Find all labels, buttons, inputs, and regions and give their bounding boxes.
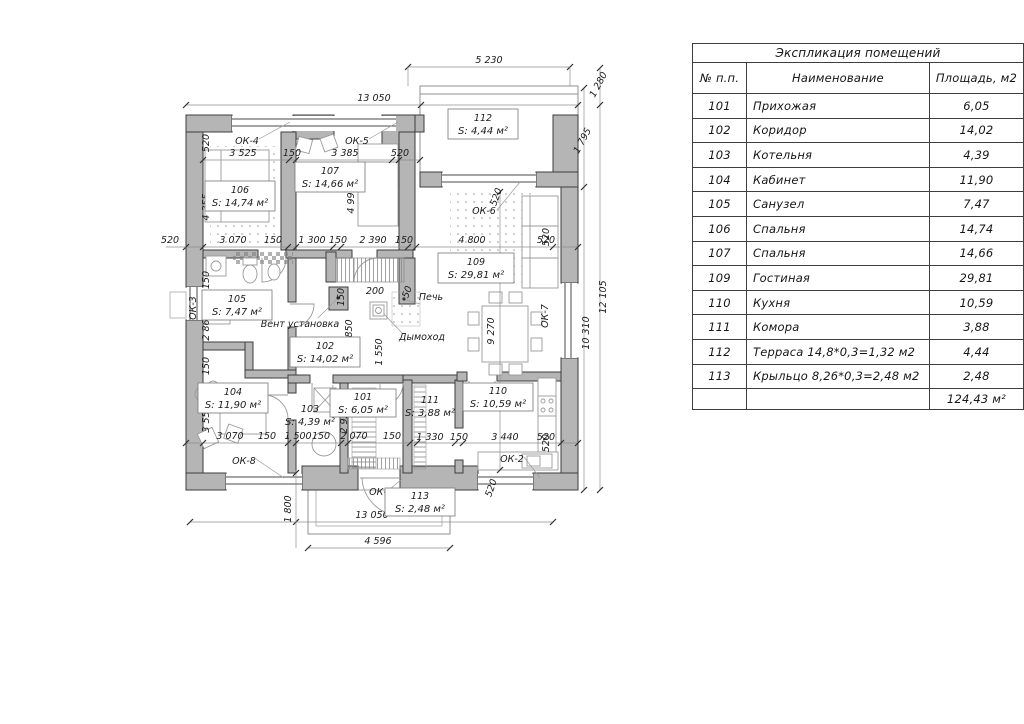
room-area-cell: 2,48 bbox=[929, 364, 1023, 389]
room-number-cell: 103 bbox=[693, 143, 747, 168]
room-number-cell: 112 bbox=[693, 339, 747, 364]
dim-label: 10 310 bbox=[581, 316, 592, 349]
room-number-cell: 104 bbox=[693, 167, 747, 192]
room-number: 102 bbox=[316, 341, 334, 352]
table-row: 102 Коридор 14,02 bbox=[693, 118, 1024, 143]
vent-unit-label: Вент установка bbox=[261, 319, 340, 330]
table-row: 110 Кухня 10,59 bbox=[693, 290, 1024, 315]
room-area-cell: 14,66 bbox=[929, 241, 1023, 266]
window-label-ok3: ОК-3 bbox=[188, 296, 199, 320]
window-label-ok2: ОК-2 bbox=[500, 454, 524, 465]
table-row: 113 Крыльцо 8,26*0,3=2,48 м2 2,48 bbox=[693, 364, 1024, 389]
dim-label: 150 bbox=[383, 431, 401, 442]
table-row: 105 Санузел 7,47 bbox=[693, 192, 1024, 217]
table-row: 104 Кабинет 11,90 bbox=[693, 167, 1024, 192]
dim-label: 150 bbox=[201, 357, 212, 375]
dim-label: 13 050 bbox=[355, 510, 388, 521]
room-number-cell: 107 bbox=[693, 241, 747, 266]
room-area-cell: 14,74 bbox=[929, 216, 1023, 241]
dim-label: 2 070 bbox=[340, 431, 367, 442]
dim-label: 3 385 bbox=[331, 148, 358, 159]
room-area-cell: 4,39 bbox=[929, 143, 1023, 168]
dim-label: 520 bbox=[161, 235, 179, 246]
room-area: S: 7,47 м² bbox=[212, 307, 262, 318]
window-label-ok5: ОК-5 bbox=[345, 136, 369, 147]
dim-label: 3 070 bbox=[219, 235, 246, 246]
room-number-cell: 105 bbox=[693, 192, 747, 217]
room-number-cell: 106 bbox=[693, 216, 747, 241]
col-header-name: Наименование bbox=[747, 63, 930, 94]
room-area-cell: 3,88 bbox=[929, 315, 1023, 340]
room-name-cell: Гостиная bbox=[747, 266, 930, 291]
table-row: 111 Комора 3,88 bbox=[693, 315, 1024, 340]
room-area: S: 10,59 м² bbox=[470, 399, 526, 410]
table-row: 107 Спальня 14,66 bbox=[693, 241, 1024, 266]
table-row: 112 Терраса 14,8*0,3=1,32 м2 4,44 bbox=[693, 339, 1024, 364]
window-label-ok7: ОК-7 bbox=[540, 304, 551, 328]
room-name-cell: Санузел bbox=[747, 192, 930, 217]
room-number: 106 bbox=[231, 185, 249, 196]
dim-label: 150 bbox=[264, 235, 282, 246]
room-number: 109 bbox=[467, 257, 485, 268]
dim-label: 1 330 bbox=[416, 432, 443, 443]
dim-label: 150 bbox=[336, 288, 347, 306]
room-area-cell: 10,59 bbox=[929, 290, 1023, 315]
table-header-row: № п.п. Наименование Площадь, м2 bbox=[693, 63, 1024, 94]
room-number: 113 bbox=[411, 491, 429, 502]
dim-label: 1 550 bbox=[374, 338, 385, 365]
room-name-cell: Крыльцо 8,26*0,3=2,48 м2 bbox=[747, 364, 930, 389]
room-name-cell: Котельня bbox=[747, 143, 930, 168]
room-area: S: 2,48 м² bbox=[395, 504, 445, 515]
table-row: 106 Спальня 14,74 bbox=[693, 216, 1024, 241]
room-area: S: 6,05 м² bbox=[338, 405, 388, 416]
dim-label: 4 800 bbox=[458, 235, 485, 246]
dim-label: 13 050 bbox=[357, 93, 390, 104]
room-name-cell: Комора bbox=[747, 315, 930, 340]
room-area: S: 4,44 м² bbox=[458, 126, 508, 137]
table-total-row: 124,43 м² bbox=[693, 389, 1024, 410]
chimney-label: Дымоход bbox=[398, 332, 445, 343]
dim-label: 150 bbox=[312, 431, 330, 442]
dim-label: 3 440 bbox=[491, 432, 518, 443]
dim-label: 1 500 bbox=[284, 431, 311, 442]
room-number: 112 bbox=[474, 113, 492, 124]
total-empty-cell bbox=[747, 389, 930, 410]
col-header-area: Площадь, м2 bbox=[929, 63, 1023, 94]
dim-label: 12 105 bbox=[598, 280, 609, 313]
room-number-cell: 101 bbox=[693, 94, 747, 119]
dim-label: 150 bbox=[201, 271, 212, 289]
room-number: 111 bbox=[421, 395, 439, 406]
table-row: 101 Прихожая 6,05 bbox=[693, 94, 1024, 119]
dim-label: 150 bbox=[258, 431, 276, 442]
room-number: 103 bbox=[301, 404, 319, 415]
room-name-cell: Кухня bbox=[747, 290, 930, 315]
room-area-cell: 29,81 bbox=[929, 266, 1023, 291]
room-number-cell: 109 bbox=[693, 266, 747, 291]
dim-label: 520 bbox=[391, 148, 409, 159]
dim-label: 520 bbox=[541, 228, 552, 246]
stove-label: Печь bbox=[419, 292, 443, 303]
room-area-cell: 14,02 bbox=[929, 118, 1023, 143]
room-area: S: 14,74 м² bbox=[212, 198, 268, 209]
room-number: 101 bbox=[354, 392, 372, 403]
room-schedule-table: Экспликация помещений № п.п. Наименовани… bbox=[692, 43, 1024, 410]
col-header-num: № п.п. bbox=[693, 63, 747, 94]
room-name-cell: Коридор bbox=[747, 118, 930, 143]
window-label-ok8: ОК-8 bbox=[232, 456, 256, 467]
table-row: 109 Гостиная 29,81 bbox=[693, 266, 1024, 291]
dim-label: 4 596 bbox=[364, 536, 391, 547]
room-number: 105 bbox=[228, 294, 246, 305]
total-empty-cell bbox=[693, 389, 747, 410]
table-row: 103 Котельня 4,39 bbox=[693, 143, 1024, 168]
dim-label: 150 bbox=[329, 235, 347, 246]
room-area-cell: 6,05 bbox=[929, 94, 1023, 119]
room-area: S: 14,66 м² bbox=[302, 179, 358, 190]
room-area: S: 14,02 м² bbox=[297, 354, 353, 365]
room-area: S: 11,90 м² bbox=[205, 400, 261, 411]
room-name-cell: Спальня bbox=[747, 241, 930, 266]
table-title-row: Экспликация помещений bbox=[693, 44, 1024, 63]
room-area-cell: 11,90 bbox=[929, 167, 1023, 192]
room-area: S: 4,39 м² bbox=[285, 417, 335, 428]
room-name-cell: Кабинет bbox=[747, 167, 930, 192]
dim-label: 1 280 bbox=[588, 70, 610, 99]
room-name-cell: Спальня bbox=[747, 216, 930, 241]
room-area: S: 3,88 м² bbox=[405, 408, 455, 419]
dim-label: 9 270 bbox=[486, 317, 497, 344]
dim-label: 200 bbox=[366, 286, 384, 297]
table-title: Экспликация помещений bbox=[693, 44, 1024, 63]
dim-label: 5 230 bbox=[475, 55, 502, 66]
dim-label: 150 bbox=[283, 148, 301, 159]
room-number-cell: 111 bbox=[693, 315, 747, 340]
dim-label: 1 300 bbox=[298, 235, 325, 246]
room-number: 107 bbox=[321, 166, 339, 177]
floor-plan-sheet: 5 230 13 050 1 280 1 795 12 105 10 310 5… bbox=[0, 0, 1024, 724]
dim-label: 520 bbox=[201, 134, 212, 152]
room-number-cell: 110 bbox=[693, 290, 747, 315]
room-area-cell: 4,44 bbox=[929, 339, 1023, 364]
room-name-cell: Прихожая bbox=[747, 94, 930, 119]
dim-label: 3 525 bbox=[229, 148, 256, 159]
room-name-cell: Терраса 14,8*0,3=1,32 м2 bbox=[747, 339, 930, 364]
room-number-cell: 113 bbox=[693, 364, 747, 389]
dim-label: 2 390 bbox=[359, 235, 386, 246]
room-area-cell: 7,47 bbox=[929, 192, 1023, 217]
dim-label: 1 800 bbox=[283, 495, 294, 522]
room-number-cell: 102 bbox=[693, 118, 747, 143]
dim-label: 150 bbox=[395, 235, 413, 246]
room-number: 104 bbox=[224, 387, 242, 398]
total-area-cell: 124,43 м² bbox=[929, 389, 1023, 410]
dim-label: 520 bbox=[537, 432, 555, 443]
window-label-ok4: ОК-4 bbox=[235, 136, 259, 147]
room-area: S: 29,81 м² bbox=[448, 270, 504, 281]
dim-label: 3 070 bbox=[216, 431, 243, 442]
dim-label: 150 bbox=[450, 432, 468, 443]
room-number: 110 bbox=[489, 386, 507, 397]
window-label-ok6: ОК-6 bbox=[472, 206, 496, 217]
